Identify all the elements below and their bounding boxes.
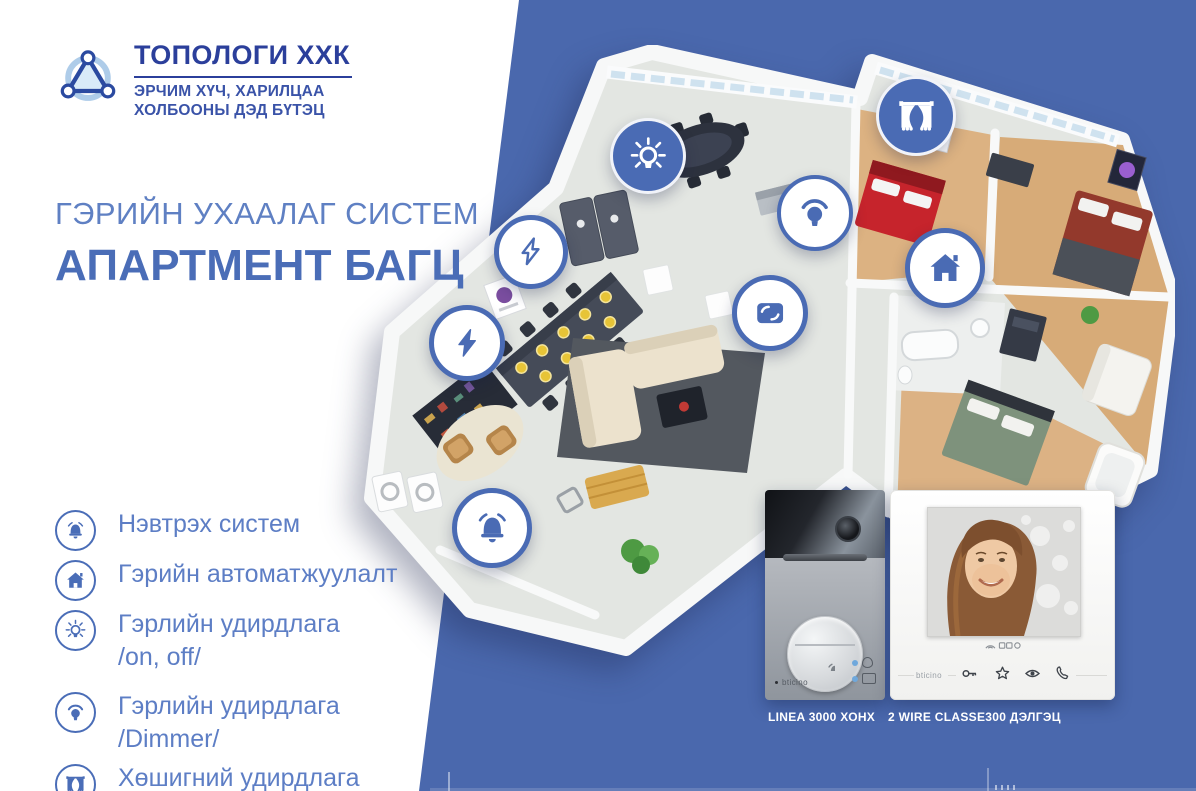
caption-linea3000: LINEA 3000 ХОНХ (768, 710, 875, 724)
home-icon (925, 248, 966, 289)
phone-icon (1055, 666, 1070, 681)
curtain-icon (895, 95, 938, 138)
feature-light-dimmer: Гэрлийн удирдлага /Dimmer/ (55, 690, 340, 757)
power-marker-2 (429, 305, 505, 381)
feature-label-line2: /Dimmer/ (118, 723, 340, 756)
home-icon (55, 560, 96, 601)
doorbell-icon (472, 508, 513, 549)
star-icon (995, 666, 1010, 681)
feature-light-on-off: Гэрлийн удирдлага /on, off/ (55, 608, 340, 675)
intercom-controls: bticino (890, 662, 1115, 688)
brand-tagline-line1: ЭРЧИМ ХҮЧ, ХАРИЛЦАА (134, 83, 358, 102)
product-classe300: bticino (890, 490, 1115, 700)
feature-label: Гэрлийн удирдлага (118, 608, 340, 641)
key-icon (962, 666, 977, 681)
feature-label: Хөшигний удирдлага (118, 762, 360, 791)
speaker-slot (783, 554, 867, 561)
light-on-off-marker (610, 118, 686, 194)
doorbell-marker (452, 488, 532, 568)
feature-label: Гэрлийн удирдлага (118, 690, 340, 723)
feature-access-system: Нэвтрэх систем (55, 508, 300, 551)
camera-lens-icon (835, 516, 861, 542)
doorbell-camera-panel (765, 490, 885, 558)
feature-home-automation: Гэрийн автоматжуулалт (55, 558, 397, 601)
doorbell-brand-label: bticino (775, 678, 808, 687)
home-automation-marker (905, 228, 985, 308)
brand-name: ТОПОЛОГИ ХХК (134, 40, 358, 71)
caption-classe300: 2 WIRE CLASSE300 ДЭЛГЭЦ (888, 710, 1061, 724)
product-linea3000: bticino (765, 490, 885, 700)
light-on-off-icon (55, 610, 96, 651)
power-marker-1 (494, 215, 568, 289)
brand-divider (134, 76, 352, 78)
screen-status-icons (890, 641, 1115, 650)
brand-tagline-line2: ХОЛБООНЫ ДЭД БҮТЭЦ (134, 102, 358, 121)
brand-logo: ТОПОЛОГИ ХХК ЭРЧИМ ХҮЧ, ХАРИЛЦАА ХОЛБООН… (58, 40, 358, 121)
curtain-marker (876, 76, 956, 156)
light-dimmer-icon (795, 193, 834, 232)
light-dimmer-icon (55, 692, 96, 733)
network-triangle-icon (58, 40, 118, 117)
display-brand-label: bticino (916, 671, 942, 680)
hero-kicker: ГЭРИЙН УХААЛАГ СИСТЕМ (55, 196, 479, 232)
eye-icon (1025, 666, 1040, 681)
intercom-screen (927, 507, 1081, 637)
feature-label-line2: /on, off/ (118, 641, 340, 674)
feature-label: Гэрийн автоматжуулалт (118, 558, 397, 591)
power-icon (512, 233, 549, 270)
light-dimmer-marker (777, 175, 853, 251)
cutoff-footer-ticks (995, 785, 1015, 790)
doorbell-indicators (852, 657, 876, 684)
flyer-canvas: ТОПОЛОГИ ХХК ЭРЧИМ ХҮЧ, ХАРИЛЦАА ХОЛБООН… (0, 0, 1196, 791)
light-on-off-icon (628, 136, 669, 177)
curtain-icon (55, 764, 96, 791)
doorbell-icon (55, 510, 96, 551)
page-title: АПАРТМЕНТ БАГЦ (55, 241, 479, 291)
feature-label: Нэвтрэх систем (118, 508, 300, 541)
power-icon (448, 324, 486, 362)
scene-screen-marker (732, 275, 808, 351)
feature-curtain-control: Хөшигний удирдлага (55, 762, 360, 791)
scene-screen-icon (751, 294, 789, 332)
